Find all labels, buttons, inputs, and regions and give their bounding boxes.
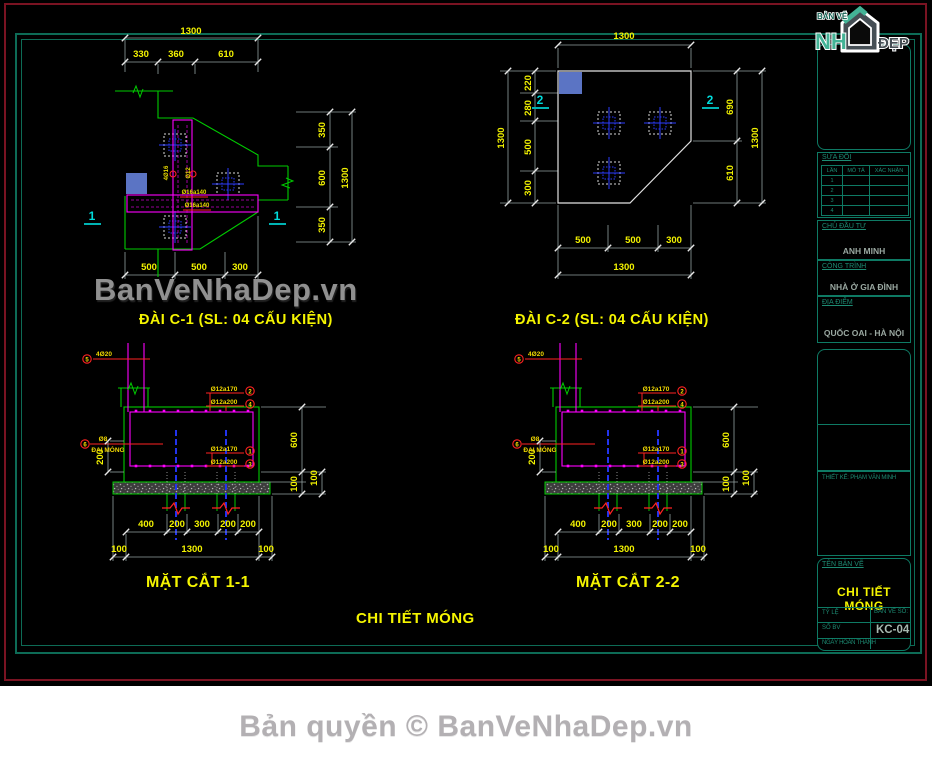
- revision-col: XÁC NHẬN: [870, 166, 909, 176]
- dim-label: 200: [652, 519, 668, 530]
- project-box: CÔNG TRÌNH NHÀ Ở GIA ĐÌNH: [817, 260, 911, 296]
- section-marker: 2: [537, 93, 544, 107]
- copyright-text: Bản quyền © BanVeNhaDep.vn: [239, 710, 693, 744]
- dim-label: 400: [570, 519, 586, 530]
- logo-text-top: BẢN VẼ: [817, 12, 848, 21]
- dim-label: 100: [690, 544, 706, 555]
- callout-label: Ø12a200: [643, 399, 670, 406]
- rebar-label: Ø16a140: [185, 203, 210, 209]
- watermark-text: BanVeNhaDep.vn: [94, 272, 358, 308]
- dim-label: 350: [317, 122, 328, 138]
- callout-label: ĐAI MÓNG: [91, 445, 124, 454]
- column-fill-c2: [559, 72, 582, 94]
- drawing-name-label: TÊN BẢN VẼ: [822, 561, 864, 568]
- signature-box-1: [817, 349, 911, 471]
- house-logo-icon: [842, 9, 878, 51]
- designer-box: THIẾT KẾ: PHẠM VĂN MINH: [817, 471, 911, 556]
- callout-label: 4Ø20: [528, 351, 544, 358]
- section-2-2-title: MẶT CẮT 2-2: [576, 574, 680, 592]
- revision-box: SỬA ĐỔI LẦN MÔ TẢ XÁC NHẬN 1 2 3 4: [817, 152, 911, 218]
- dim-label: 100: [309, 470, 320, 486]
- dim-label: 300: [523, 180, 534, 196]
- owner-value: ANH MINH: [818, 246, 910, 256]
- sheet-number: KC-04: [876, 624, 909, 636]
- copyright-bar: Bản quyền © BanVeNhaDep.vn: [0, 686, 932, 767]
- dim-label: 100: [289, 476, 300, 492]
- dim-label: 200: [240, 519, 256, 530]
- dim-label: 500: [575, 235, 591, 246]
- dim-label: 100: [741, 470, 752, 486]
- column-fill-c1: [126, 173, 147, 194]
- dim-label: 690: [725, 99, 736, 115]
- callout-label: Ø8: [531, 436, 540, 443]
- section-2-2: 400 200 300 200 200 100 1300 100 200 600…: [515, 351, 752, 555]
- dim-label: 1300: [613, 31, 634, 42]
- revision-table: LẦN MÔ TẢ XÁC NHẬN 1 2 3 4: [821, 165, 909, 216]
- owner-label: CHỦ ĐẦU TƯ: [822, 223, 866, 230]
- callout-label: Ø12a170: [211, 386, 238, 393]
- dim-label: 1300: [613, 544, 634, 555]
- dim-label: 100: [258, 544, 274, 555]
- dim-label: 200: [220, 519, 236, 530]
- dim-label: 1300: [180, 26, 201, 37]
- drawing-name-box: TÊN BẢN VẼ CHI TIẾT MÓNG TỶ LỆ SỐ BV BẢN…: [817, 558, 911, 651]
- dim-label: 500: [523, 139, 534, 155]
- sheet-main-title: CHI TIẾT MÓNG: [356, 610, 475, 627]
- dim-label: 500: [625, 235, 641, 246]
- location-value: QUỐC OAI - HÀ NỘI: [818, 328, 910, 338]
- owner-box: CHỦ ĐẦU TƯ ANH MINH: [817, 220, 911, 260]
- dim-label: 300: [666, 235, 682, 246]
- rebar-label: Ø16a140: [182, 190, 207, 196]
- scale-label: TỶ LỆ: [822, 610, 839, 616]
- project-value: NHÀ Ở GIA ĐÌNH: [818, 282, 910, 292]
- revision-col: MÔ TẢ: [843, 166, 870, 176]
- callout-label: Ø12a200: [211, 399, 238, 406]
- section-1-1-title: MẶT CẮT 1-1: [146, 574, 250, 592]
- plan-c2-title: ĐÀI C-2 (SL: 04 CẤU KIỆN): [515, 312, 709, 328]
- callout-label: Ø12a170: [643, 446, 670, 453]
- sheet-label: BẢN VẼ SỐ:: [874, 609, 908, 615]
- callout-label: Ø8: [99, 436, 108, 443]
- logo-text-right: ĐẸP: [878, 35, 909, 52]
- dim-label: 1300: [613, 262, 634, 273]
- dim-label: 330: [133, 49, 149, 60]
- location-label: ĐỊA ĐIỂM: [822, 299, 853, 306]
- plan-c2: 1300 220 280 500 300 1300 690 610 1300 5…: [496, 31, 761, 273]
- dim-label: 100: [721, 476, 732, 492]
- callout-label: Ø12a170: [643, 386, 670, 393]
- dim-label: 220: [523, 75, 534, 91]
- dim-label: 100: [543, 544, 559, 555]
- callout-label: 4Ø20: [96, 351, 112, 358]
- date-label: NGÀY HOÀN THÀNH: [822, 640, 876, 646]
- callout-label: Ø12a170: [211, 446, 238, 453]
- number-label: SỐ BV: [822, 625, 840, 631]
- dim-label: 300: [194, 519, 210, 530]
- dim-label: 400: [138, 519, 154, 530]
- callout-label: Ø12a200: [643, 459, 670, 466]
- revision-row-num: 3: [822, 196, 843, 206]
- dim-label: 200: [601, 519, 617, 530]
- dim-label: 1300: [340, 167, 351, 188]
- section-marker: 1: [274, 209, 281, 223]
- dim-label: 200: [672, 519, 688, 530]
- cad-sheet: 1300 330 360 610 350 600 350 1300 500 50…: [0, 0, 932, 767]
- dim-label: 600: [289, 432, 300, 448]
- dim-label: 360: [168, 49, 184, 60]
- revision-header: SỬA ĐỔI: [822, 154, 851, 161]
- dim-label: 610: [218, 49, 234, 60]
- callout-label: Ø12a200: [211, 459, 238, 466]
- dim-label: 610: [725, 165, 736, 181]
- revision-col: LẦN: [822, 166, 843, 176]
- rebar-label: 4Ø16: [164, 165, 170, 180]
- cad-linework: 1300 330 360 610 350 600 350 1300 500 50…: [0, 0, 932, 686]
- callout-label: ĐAI MÓNG: [523, 445, 556, 454]
- section-1-1: 400 200 300 200 200 100 1300 100 200 600…: [83, 351, 320, 555]
- dim-label: 100: [111, 544, 127, 555]
- banvenhadep-logo: BẢN VẼ NH ĐẸP: [814, 6, 916, 60]
- location-box: ĐỊA ĐIỂM QUỐC OAI - HÀ NỘI: [817, 296, 911, 343]
- dim-label: 1300: [181, 544, 202, 555]
- revision-row-num: 2: [822, 186, 843, 196]
- revision-row-num: 1: [822, 176, 843, 186]
- dim-label: 200: [169, 519, 185, 530]
- section-marker: 1: [89, 209, 96, 223]
- dim-label: 350: [317, 217, 328, 233]
- dim-label: 600: [317, 170, 328, 186]
- section-marker: 2: [707, 93, 714, 107]
- dim-label: 300: [626, 519, 642, 530]
- revision-row-num: 4: [822, 206, 843, 216]
- logo-text-left: NH: [815, 29, 847, 54]
- rebar-label: Ø12: [186, 167, 192, 179]
- dim-label: 1300: [750, 127, 761, 148]
- plan-c1-title: ĐÀI C-1 (SL: 04 CẤU KIỆN): [139, 312, 333, 328]
- project-label: CÔNG TRÌNH: [822, 263, 866, 270]
- dim-label: 600: [721, 432, 732, 448]
- dim-label: 1300: [496, 127, 507, 148]
- designer-label: THIẾT KẾ: PHẠM VĂN MINH: [822, 475, 896, 481]
